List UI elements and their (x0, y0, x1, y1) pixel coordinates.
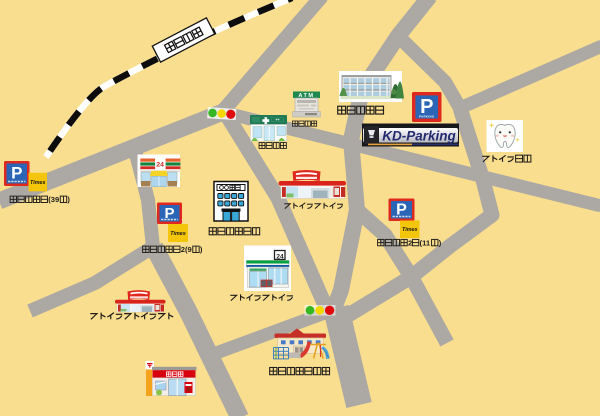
svg-text:Times: Times (402, 227, 417, 233)
svg-text:24: 24 (156, 162, 164, 169)
svg-text:(11: (11 (420, 238, 431, 247)
svg-text:2(9: 2(9 (181, 245, 192, 254)
svg-text:Times: Times (170, 231, 185, 237)
svg-text:Times: Times (30, 180, 45, 186)
svg-text:24: 24 (276, 254, 284, 261)
svg-text:KD-Parking: KD-Parking (382, 129, 456, 144)
svg-text:2: 2 (408, 238, 412, 247)
svg-text:P: P (11, 164, 22, 183)
svg-text:++: ++ (275, 118, 279, 122)
svg-text:PARKING: PARKING (419, 114, 435, 118)
svg-text:(39: (39 (48, 195, 59, 204)
